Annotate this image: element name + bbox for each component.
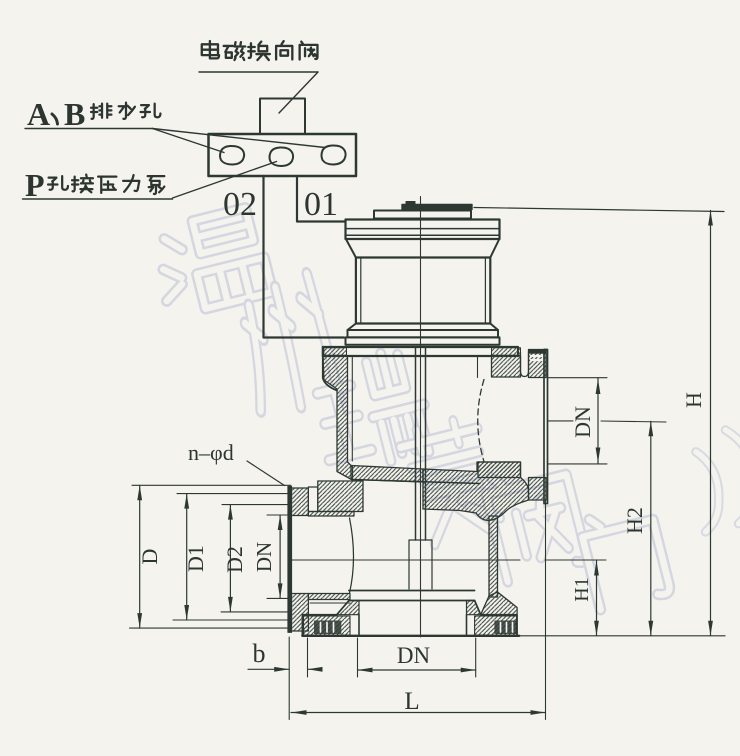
svg-text:A: A [27,96,50,132]
svg-text:02: 02 [223,186,257,223]
svg-text:D2: D2 [222,546,247,573]
svg-text:P: P [25,167,45,203]
svg-text:01: 01 [304,186,338,223]
svg-text:DN: DN [252,542,276,572]
svg-text:H2: H2 [622,507,647,534]
svg-text:D1: D1 [183,545,208,572]
svg-text:L: L [404,688,419,715]
svg-text:n–φd: n–φd [188,440,234,465]
svg-text:H1: H1 [571,577,593,601]
svg-text:DN: DN [397,643,431,668]
svg-text:H: H [681,392,706,408]
svg-text:B: B [64,96,85,132]
svg-text:b: b [253,639,266,668]
svg-text:DN: DN [570,406,595,438]
svg-text:D: D [137,549,162,565]
